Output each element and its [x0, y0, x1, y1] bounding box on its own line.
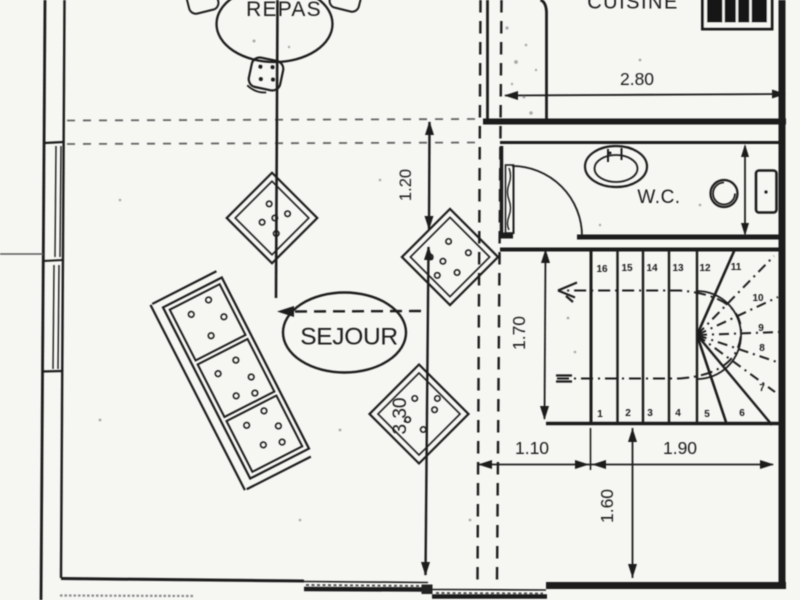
svg-text:1.20: 1.20	[397, 169, 415, 201]
svg-text:1.70: 1.70	[509, 316, 529, 350]
svg-text:CUISINE: CUISINE	[587, 0, 679, 14]
svg-text:8: 8	[759, 343, 765, 354]
svg-text:3: 3	[647, 408, 653, 419]
svg-text:W.C.: W.C.	[637, 187, 680, 208]
svg-text:14: 14	[646, 263, 658, 274]
svg-text:1.90: 1.90	[663, 438, 697, 458]
svg-text:REPAS: REPAS	[246, 0, 322, 21]
svg-text:10: 10	[752, 293, 764, 304]
svg-text:3.30: 3.30	[390, 398, 411, 435]
svg-text:2: 2	[625, 408, 631, 419]
svg-text:11: 11	[731, 262, 742, 273]
svg-text:2.80: 2.80	[620, 69, 654, 89]
svg-text:1.10: 1.10	[515, 438, 549, 458]
svg-text:7: 7	[759, 383, 765, 394]
svg-text:12: 12	[699, 263, 711, 274]
svg-text:SEJOUR: SEJOUR	[300, 324, 398, 351]
svg-text:15: 15	[621, 263, 633, 274]
svg-text:16: 16	[596, 264, 608, 275]
svg-text:1: 1	[597, 409, 603, 420]
svg-text:5: 5	[704, 409, 710, 420]
svg-text:6: 6	[739, 408, 745, 419]
svg-text:9: 9	[758, 323, 764, 334]
svg-text:13: 13	[672, 263, 684, 274]
svg-text:1.60: 1.60	[597, 489, 617, 523]
svg-text:4: 4	[675, 408, 681, 419]
